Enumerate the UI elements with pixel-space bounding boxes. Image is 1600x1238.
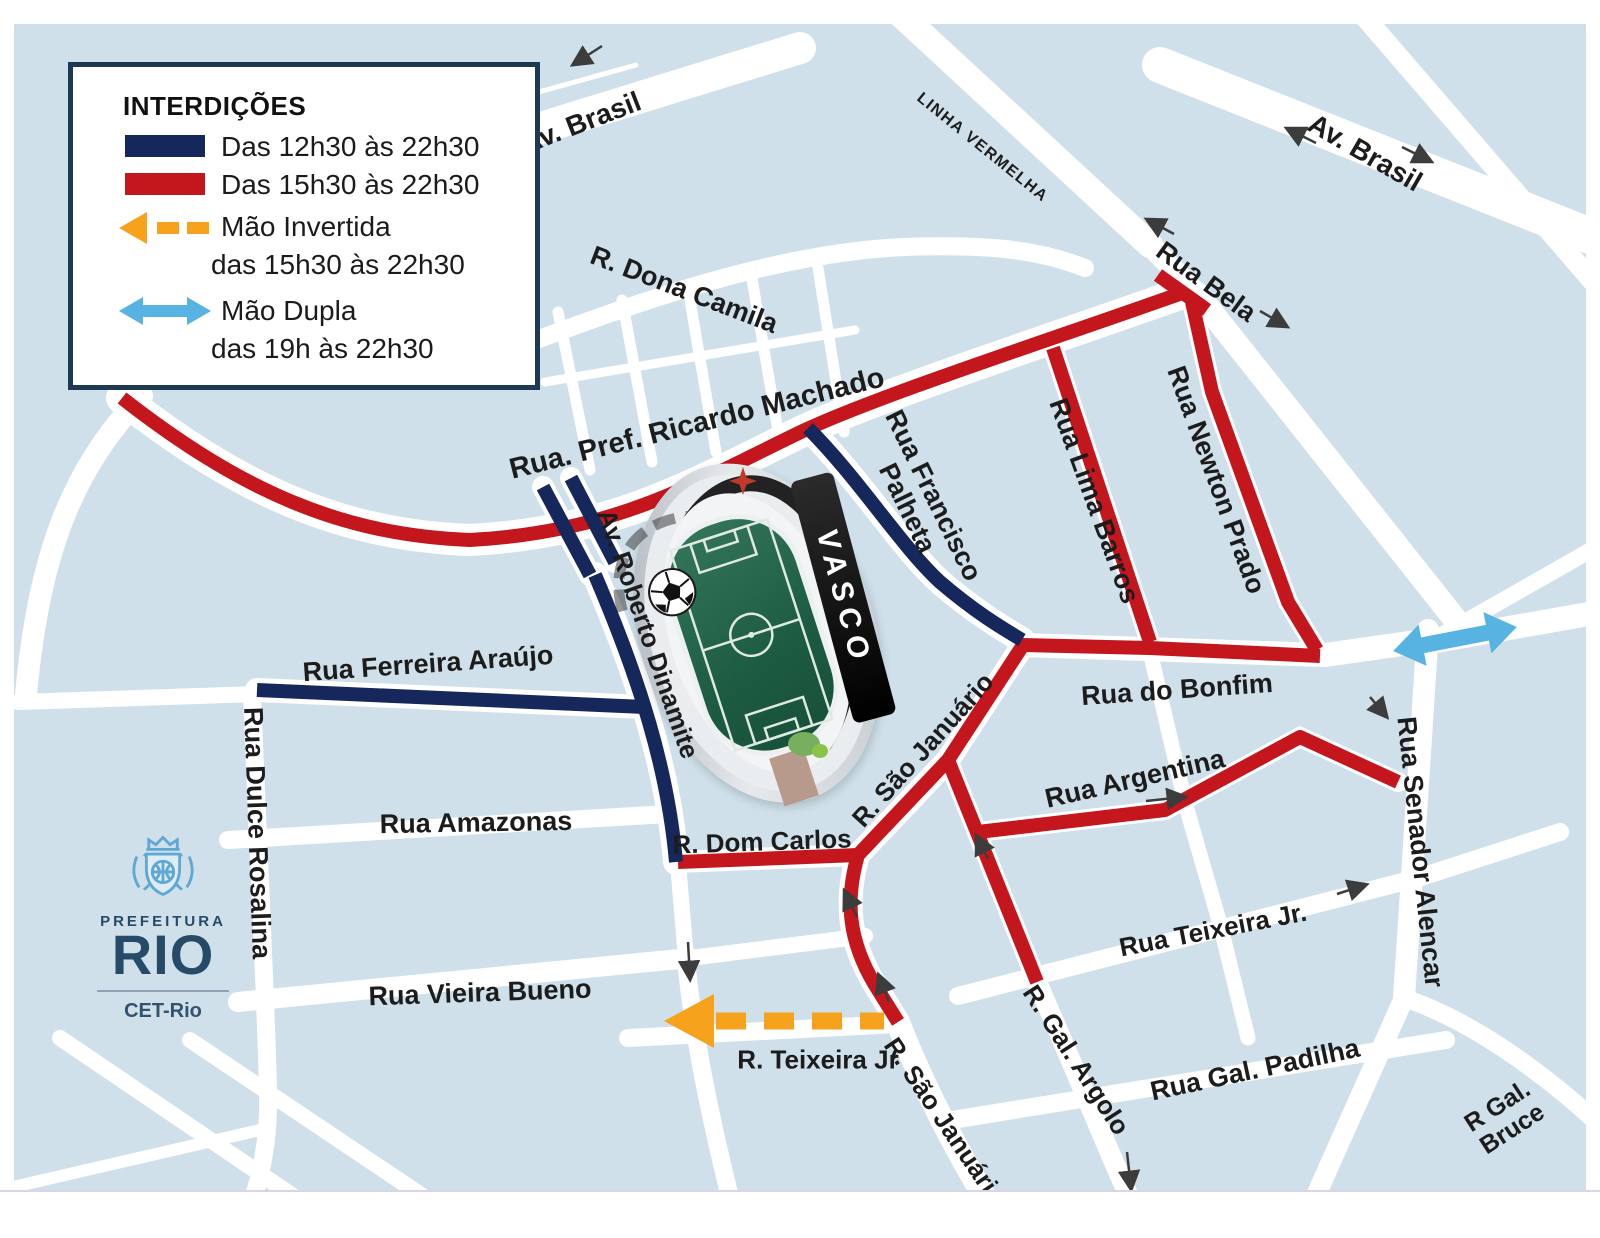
legend-navy-swatch [125, 135, 205, 157]
traffic-closure-map: VASCO Av. [0, 0, 1600, 1238]
street-label-amazonas: Rua Amazonas [379, 806, 572, 840]
legend-item-inverted: Mão Invertida [221, 211, 391, 243]
frame-margin [0, 0, 1600, 24]
prefeitura-rio-logo: PREFEITURA RIO CET-Rio [88, 828, 238, 1023]
map-canvas: VASCO Av. [0, 0, 1600, 1238]
logo-cet-rio-text: CET-Rio [88, 1000, 238, 1023]
logo-divider [97, 990, 229, 992]
legend-inverted-arrow-icon [119, 211, 207, 245]
legend-item-12h30: Das 12h30 às 22h30 [221, 131, 479, 163]
vasco-cross-icon [728, 466, 758, 496]
road-teixeira-south [628, 1024, 898, 1038]
minor-road [26, 396, 142, 695]
direction-arrow [574, 46, 602, 64]
minor-road [1186, 806, 1220, 924]
frame-margin [0, 1190, 1600, 1238]
rio-crest-icon [125, 828, 201, 904]
legend-item-two-way-hours: das 19h às 22h30 [211, 333, 434, 365]
road-linha-vermelha [885, 0, 1150, 245]
legend-item-two-way: Mão Dupla [221, 295, 356, 327]
street-label-dom-carlos: R. Dom Carlos [672, 823, 852, 860]
direction-arrow [1260, 311, 1286, 326]
minor-road [690, 936, 865, 958]
street-label-teixeira-south: R. Teixeira Jr [737, 1045, 898, 1076]
closure-gal-argolo [948, 760, 1037, 982]
minor-road [18, 694, 260, 702]
legend-title: INTERDIÇÕES [123, 91, 306, 122]
legend-two-way-arrow-icon [119, 295, 211, 327]
tree-icon [812, 744, 828, 758]
minor-road [0, 1130, 260, 1190]
legend-item-15h30: Das 15h30 às 22h30 [221, 169, 479, 201]
legend-red-swatch [125, 173, 205, 195]
legend-item-inverted-hours: das 15h30 às 22h30 [211, 249, 465, 281]
direction-arrow [1370, 697, 1386, 716]
minor-road [678, 864, 686, 958]
frame-margin [0, 0, 14, 1238]
logo-rio-text: RIO [88, 930, 238, 980]
frame-margin [1586, 0, 1600, 1238]
legend-box: INTERDIÇÕES Das 12h30 às 22h30 Das 15h30… [68, 62, 540, 390]
